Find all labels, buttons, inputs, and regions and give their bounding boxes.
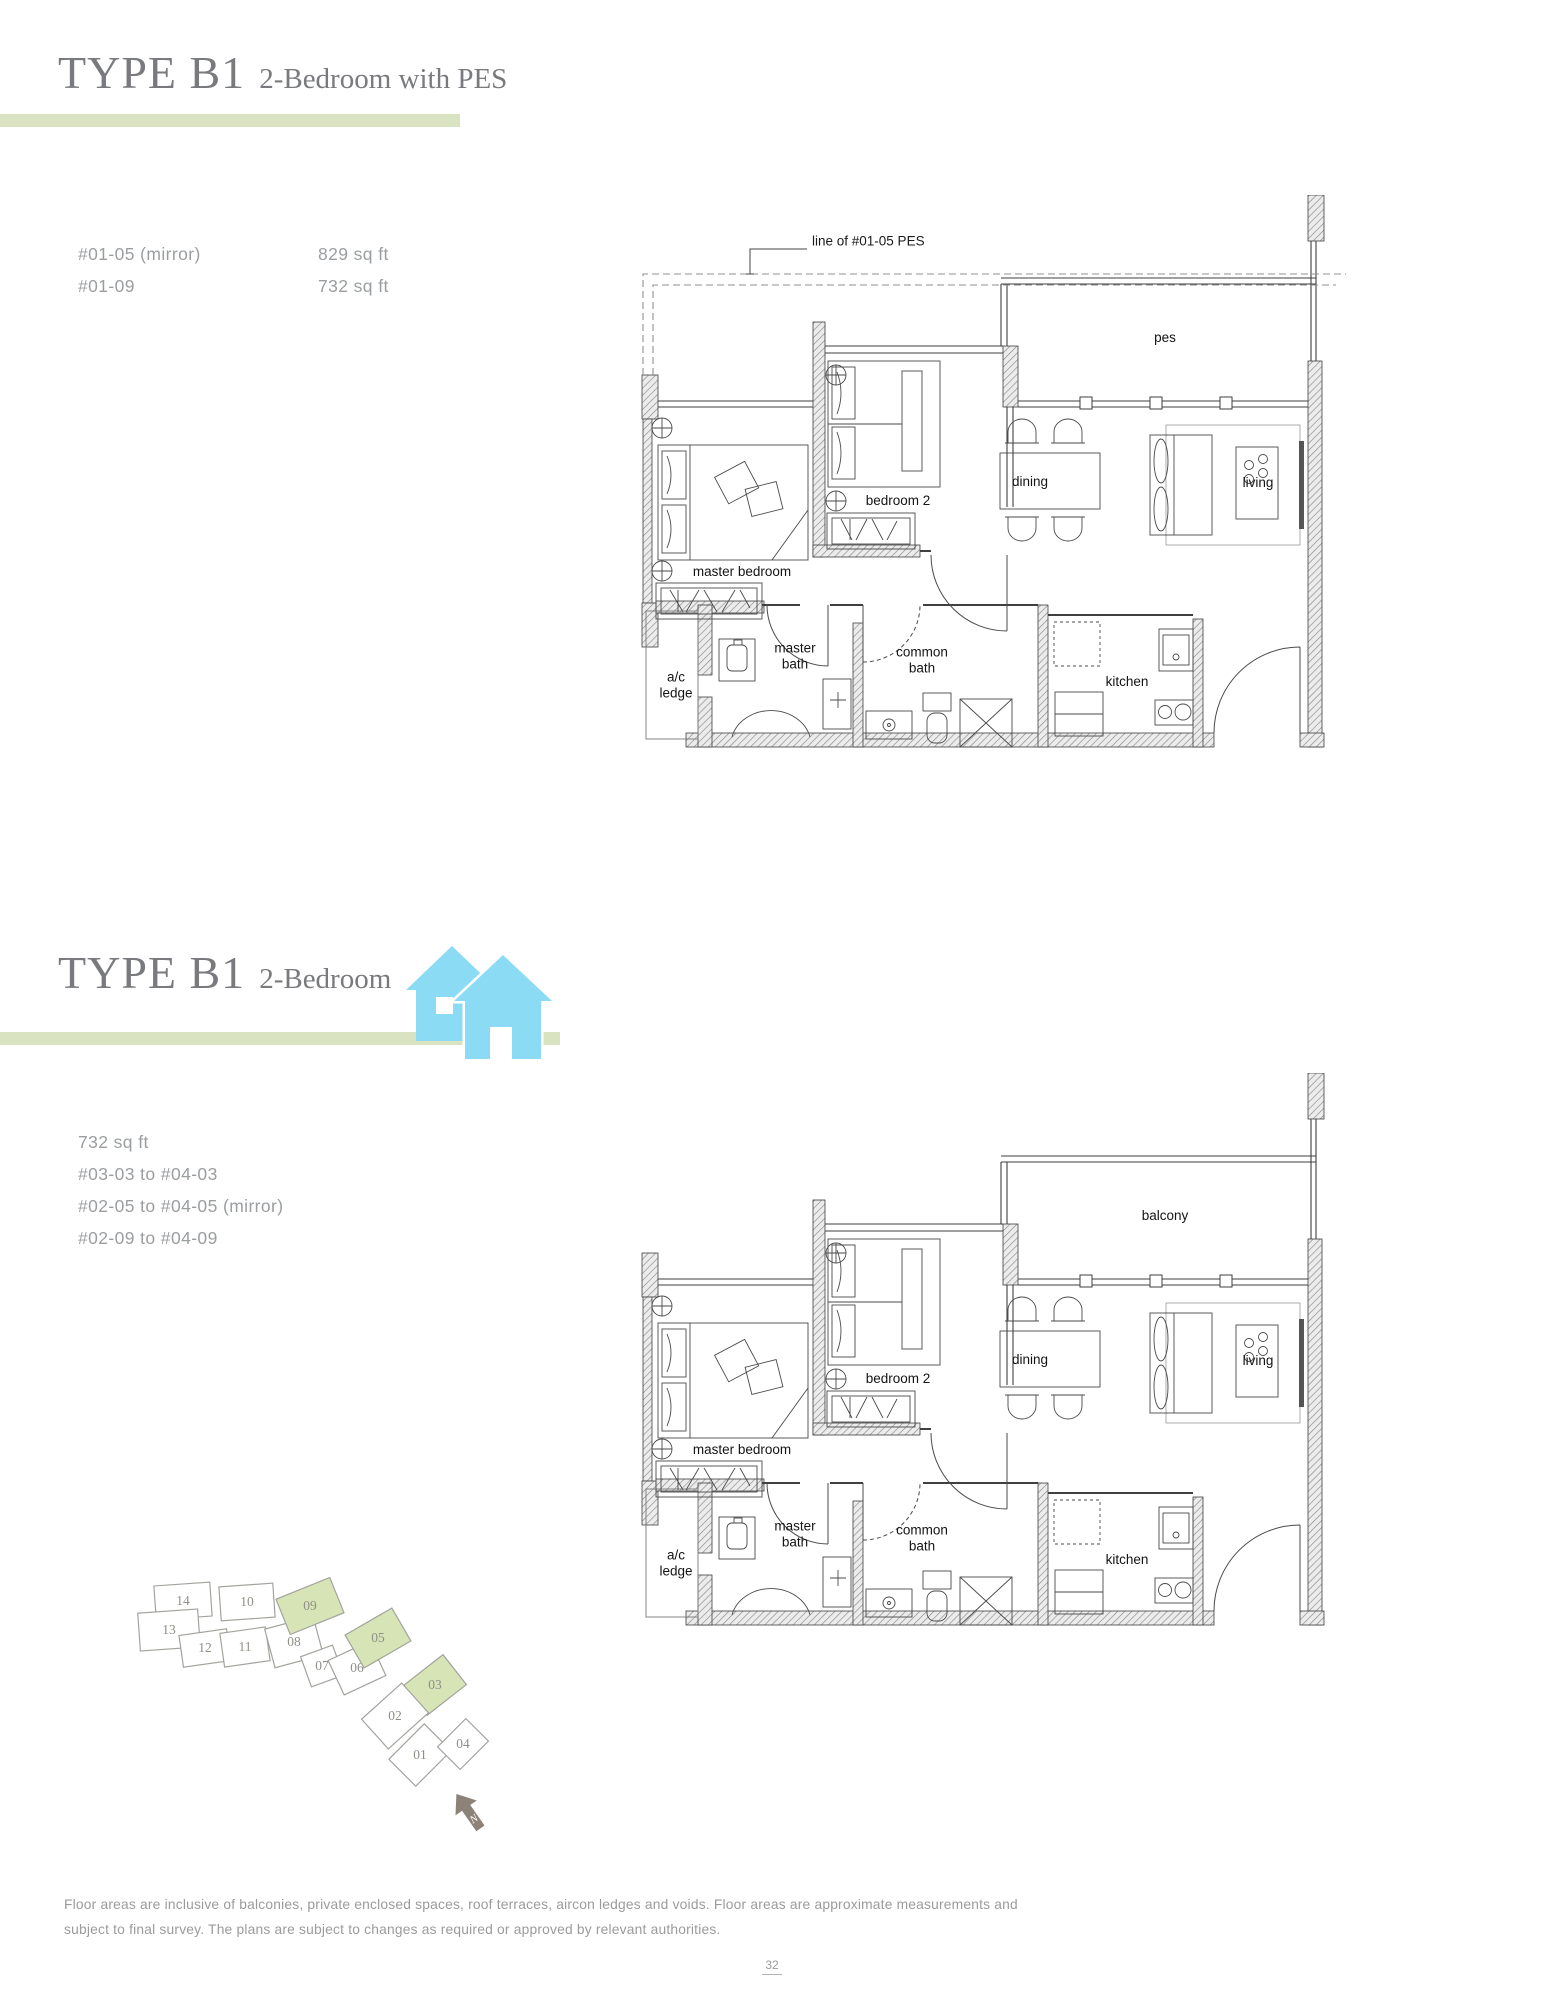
info-line: #03-03 to #04-03 [78,1158,284,1190]
svg-text:03: 03 [428,1677,442,1692]
site-key-plan: 14 10 13 12 11 08 [95,1520,495,1850]
room-label-common-bath: common bath [896,1523,948,1556]
room-label-living: living [1243,475,1274,491]
unit-row: #01-09 732 sq ft [78,270,389,302]
info-line: #02-05 to #04-05 (mirror) [78,1190,284,1222]
brochure-page: TYPE B1 2-Bedroom with PES #01-05 (mirro… [0,0,1544,2000]
site-unit: 04 [438,1719,489,1770]
section1-title: TYPE B1 2-Bedroom with PES [58,46,507,99]
svg-text:10: 10 [240,1594,254,1609]
room-label-common-bath: common bath [896,645,948,678]
unit-number: #01-09 [78,270,318,302]
north-arrow-icon: N [446,1787,491,1836]
section2-title: TYPE B1 2-Bedroom [58,946,391,999]
floorplan-with-balcony: balcony dining living bedroom 2 master b… [510,1073,1350,1653]
room-label-master-bath: master bath [774,641,815,674]
info-line: #02-09 to #04-09 [78,1222,284,1254]
room-label-bedroom2: bedroom 2 [866,493,931,509]
svg-text:05: 05 [371,1630,385,1645]
room-label-dining: dining [1012,474,1048,490]
site-unit: 10 [219,1583,275,1621]
section2-unit-info: 732 sq ft #03-03 to #04-03 #02-05 to #04… [78,1126,284,1254]
room-label-master-bedroom: master bedroom [693,1442,791,1458]
houses-icon [400,933,552,1067]
floorplan-drawing [510,1073,1350,1653]
svg-text:08: 08 [287,1634,301,1649]
room-label-master-bedroom: master bedroom [693,564,791,580]
room-label-master-bath: master bath [774,1519,815,1552]
room-label-ac-ledge: a/c ledge [659,1548,692,1581]
svg-text:12: 12 [198,1640,212,1655]
footer-line2: subject to final survey. The plans are s… [64,1917,1500,1942]
room-label-kitchen: kitchen [1106,1552,1149,1568]
pes-line-annotation: line of #01-05 PES [812,234,925,249]
type-subtitle: 2-Bedroom [259,963,391,996]
svg-text:02: 02 [388,1708,402,1723]
room-label-pes: pes [1154,330,1176,346]
site-unit: 11 [220,1627,270,1667]
type-title: TYPE B1 [58,46,245,99]
info-line: 732 sq ft [78,1126,284,1158]
footer-line1: Floor areas are inclusive of balconies, … [64,1892,1500,1917]
svg-text:04: 04 [456,1736,470,1751]
footer-disclaimer: Floor areas are inclusive of balconies, … [64,1892,1500,1942]
floorplan-with-pes: line of #01-05 PES pes dining living bed… [510,195,1350,775]
unit-number: #01-05 (mirror) [78,238,318,270]
room-label-balcony: balcony [1142,1208,1189,1224]
room-label-bedroom2: bedroom 2 [866,1371,931,1387]
room-label-kitchen: kitchen [1106,674,1149,690]
accent-bar [0,114,460,127]
room-label-dining: dining [1012,1352,1048,1368]
unit-area: 829 sq ft [318,238,389,270]
section1-unit-info: #01-05 (mirror) 829 sq ft #01-09 732 sq … [78,238,389,302]
site-units: 14 10 13 12 11 08 [138,1578,489,1787]
annotation-leader [746,249,807,274]
page-number: 32 [0,1958,1544,1972]
floorplan-drawing [510,195,1350,775]
svg-text:09: 09 [303,1598,317,1613]
type-subtitle: 2-Bedroom with PES [259,63,507,96]
svg-text:01: 01 [413,1747,427,1762]
site-unit-highlighted: 09 [276,1578,344,1635]
pes-boundary-dashed [643,274,1346,375]
unit-area: 732 sq ft [318,270,389,302]
room-label-ac-ledge: a/c ledge [659,670,692,703]
type-title: TYPE B1 [58,946,245,999]
room-label-living: living [1243,1353,1274,1369]
svg-text:07: 07 [315,1658,329,1673]
unit-row: #01-05 (mirror) 829 sq ft [78,238,389,270]
svg-text:11: 11 [239,1639,252,1654]
svg-text:14: 14 [176,1593,190,1608]
svg-text:13: 13 [162,1622,176,1637]
